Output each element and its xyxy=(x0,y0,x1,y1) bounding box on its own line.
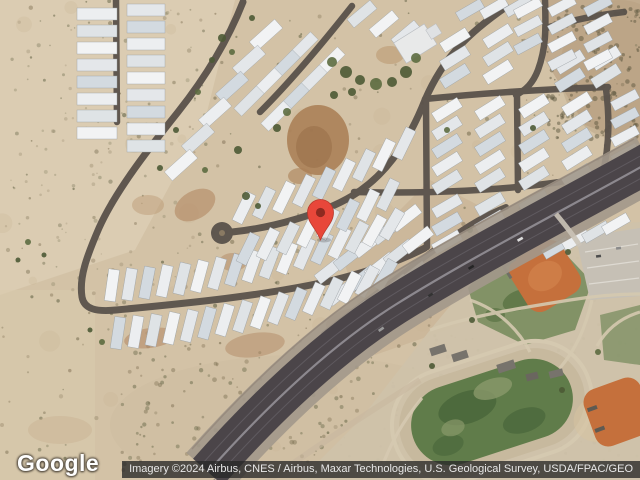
tree-icon xyxy=(348,88,356,96)
tree-icon xyxy=(283,108,291,116)
tree-icon xyxy=(25,239,31,245)
tree-icon xyxy=(234,146,242,154)
mobile-home-roof xyxy=(77,93,117,105)
mobile-home-roof xyxy=(77,42,117,54)
mobile-home-roof xyxy=(77,127,117,139)
marker-pin-dot xyxy=(316,208,325,217)
tree-icon xyxy=(530,125,536,131)
tree-icon xyxy=(411,53,421,63)
map-canvas[interactable] xyxy=(0,0,640,480)
tree-icon xyxy=(429,363,435,369)
tree-icon xyxy=(330,91,338,99)
tree-icon xyxy=(559,387,565,393)
mobile-home-roof xyxy=(127,89,165,101)
tree-icon xyxy=(595,349,601,355)
tree-icon xyxy=(229,49,235,55)
tree-icon xyxy=(16,258,21,263)
tree-icon xyxy=(157,165,163,171)
attribution-text: Imagery ©2024 Airbus, CNES / Airbus, Max… xyxy=(129,463,633,475)
tree-icon xyxy=(99,339,105,345)
tree-icon xyxy=(370,78,382,90)
mobile-home-roof xyxy=(77,25,117,37)
google-logo-text: Google xyxy=(17,450,99,476)
tree-icon xyxy=(88,328,93,333)
tree-icon xyxy=(340,66,352,78)
attribution-bar: Imagery ©2024 Airbus, CNES / Airbus, Max… xyxy=(122,461,640,478)
tree-icon xyxy=(565,249,571,255)
mobile-home-roof xyxy=(77,59,117,71)
mobile-home-roof xyxy=(127,72,165,84)
tree-icon xyxy=(249,15,255,21)
mobile-home-roof xyxy=(127,55,165,67)
tree-icon xyxy=(42,253,47,258)
tree-icon xyxy=(327,57,337,67)
tree-icon xyxy=(255,203,261,209)
tree-icon xyxy=(209,57,215,63)
map-view: Google Imagery ©2024 Airbus, CNES / Airb… xyxy=(0,0,640,480)
google-logo[interactable]: Google xyxy=(17,450,99,477)
tree-icon xyxy=(469,317,475,323)
mobile-home-roof xyxy=(77,8,117,20)
cul-de-sac-island xyxy=(219,230,225,236)
marker-shadow xyxy=(317,238,331,243)
mobile-home-roof xyxy=(77,76,117,88)
tree-icon xyxy=(387,77,397,87)
mobile-home-roof xyxy=(127,140,165,152)
mobile-home-roof xyxy=(127,4,165,16)
tree-icon xyxy=(242,192,250,200)
tree-icon xyxy=(173,127,179,133)
mobile-home-roof xyxy=(127,106,165,118)
mobile-home-roof xyxy=(77,110,117,122)
tree-icon xyxy=(218,34,226,42)
tree-icon xyxy=(202,167,208,173)
tree-icon xyxy=(195,89,201,95)
mobile-home-roof xyxy=(127,123,165,135)
tree-icon xyxy=(273,124,281,132)
mobile-home-roof xyxy=(127,21,165,33)
tree-icon xyxy=(400,66,412,78)
tree-icon xyxy=(444,127,450,133)
mobile-home-roof xyxy=(127,38,165,50)
tree-icon xyxy=(355,75,365,85)
